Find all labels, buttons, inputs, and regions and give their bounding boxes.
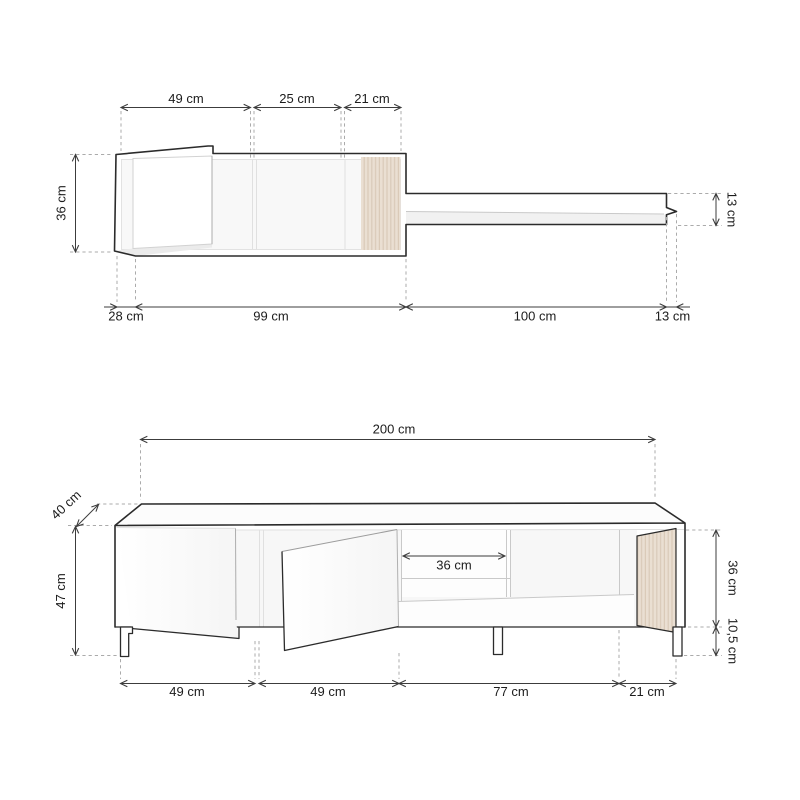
dim-label-height: 47 cm <box>53 573 68 608</box>
dim-label-bottom-3: 100 cm <box>514 309 557 324</box>
right-side-dimensions: 36 cm 10,5 cm <box>684 530 741 664</box>
right-dimension: 13 cm <box>668 192 740 227</box>
top-view-diagram: 49 cm 25 cm 21 cm 36 cm 13 cm <box>54 91 740 324</box>
open-door-top-view <box>133 156 212 249</box>
dim-label-depth: 40 cm <box>48 487 84 522</box>
cabinet-leg-middle <box>494 627 503 655</box>
dim-label-top-2: 25 cm <box>279 91 314 106</box>
middle-open-door <box>282 530 399 651</box>
dimension-diagram-svg: 49 cm 25 cm 21 cm 36 cm 13 cm <box>0 0 800 800</box>
dim-label-bottom-2: 99 cm <box>253 309 288 324</box>
dim-label-bottom-4: 13 cm <box>655 309 690 324</box>
dim-label-left-height: 36 cm <box>54 185 69 220</box>
cabinet-leg-right <box>673 627 682 656</box>
front-view-diagram: 36 cm <box>48 422 741 700</box>
width-dimension: 200 cm <box>141 422 656 501</box>
dim-label-top-3: 21 cm <box>354 91 389 106</box>
slatted-door <box>637 529 676 633</box>
height-dimension: 47 cm <box>53 527 117 656</box>
furniture-dimension-sheet: 49 cm 25 cm 21 cm 36 cm 13 cm <box>0 0 800 800</box>
dim-label-bottom-2: 49 cm <box>310 684 345 699</box>
dim-label-body-height: 36 cm <box>726 560 741 595</box>
dim-label-shelf-depth: 13 cm <box>725 192 740 227</box>
dim-label-top-1: 49 cm <box>168 91 203 106</box>
dim-label-width: 200 cm <box>373 422 416 437</box>
slatted-panel-top-view <box>361 157 401 250</box>
cabinet-leg-left <box>121 627 133 657</box>
dim-label-inner-shelf: 36 cm <box>436 558 471 573</box>
dim-label-bottom-3: 77 cm <box>493 684 528 699</box>
cabinet-top-face <box>115 503 685 526</box>
bottom-dimensions: 49 cm 49 cm 77 cm 21 cm <box>121 630 677 699</box>
dim-label-bottom-1: 28 cm <box>108 309 143 324</box>
top-dimensions: 49 cm 25 cm 21 cm <box>121 91 401 158</box>
dim-label-leg-height: 10,5 cm <box>726 618 741 664</box>
interior-top-line <box>234 530 684 531</box>
left-door <box>117 527 240 639</box>
dim-label-bottom-4: 21 cm <box>629 684 664 699</box>
left-dimension: 36 cm <box>54 155 114 253</box>
dim-label-bottom-1: 49 cm <box>169 684 204 699</box>
